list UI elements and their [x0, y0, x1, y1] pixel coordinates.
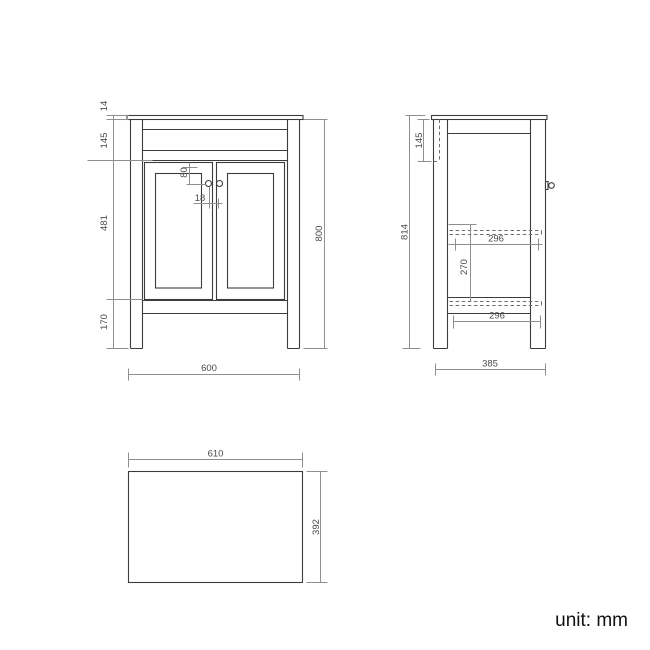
front-doors: [145, 163, 285, 300]
front-countertop: [127, 116, 303, 120]
side-hidden-lines: [434, 120, 542, 306]
dim-upper-shelf-depth: 296: [488, 234, 504, 245]
side-view: 145 814 296 270 296 385: [400, 116, 555, 376]
left-door-knob: [206, 181, 212, 187]
dim-lower-shelf-depth: 296: [489, 311, 505, 322]
side-dimensions: 145 814 296 270 296 385: [400, 116, 546, 376]
side-countertop: [432, 116, 548, 120]
dim-door-height: 481: [99, 215, 110, 231]
front-bottom-rail-lines: [143, 301, 288, 314]
dim-countertop-depth: 392: [311, 519, 322, 535]
dim-cabinet-width: 600: [201, 363, 217, 374]
dim-total-height: 814: [400, 224, 411, 240]
side-rail-lines: [448, 134, 531, 314]
dim-side-apron-height: 145: [414, 133, 425, 149]
unit-label: unit: mm: [555, 610, 628, 631]
right-door-knob: [217, 181, 223, 187]
dim-leg-height: 170: [99, 314, 110, 330]
dim-countertop-width: 610: [208, 449, 224, 460]
top-view-countertop-outline: [129, 472, 303, 583]
vanity-dimension-drawing: 14 145 481 170 800 600 80 18: [0, 0, 650, 650]
dim-body-height: 800: [314, 226, 325, 242]
dim-cabinet-depth: 385: [482, 359, 498, 370]
front-view: 14 145 481 170 800 600 80 18: [88, 101, 328, 381]
side-knob: [549, 183, 555, 189]
dim-knob-horizontal-offset: 18: [195, 193, 206, 204]
side-knob-stem: [546, 182, 549, 190]
dim-apron-height: 145: [99, 133, 110, 149]
dim-knob-vertical-offset: 80: [179, 167, 190, 178]
right-door: [217, 163, 285, 300]
dim-counter-thickness: 14: [99, 101, 110, 112]
left-door: [145, 163, 213, 300]
dim-shelf-spacing: 270: [459, 259, 470, 275]
technical-drawing-canvas: 14 145 481 170 800 600 80 18: [0, 0, 650, 650]
front-apron-panel-lines: [143, 130, 288, 151]
top-view: 610 392: [129, 449, 328, 583]
